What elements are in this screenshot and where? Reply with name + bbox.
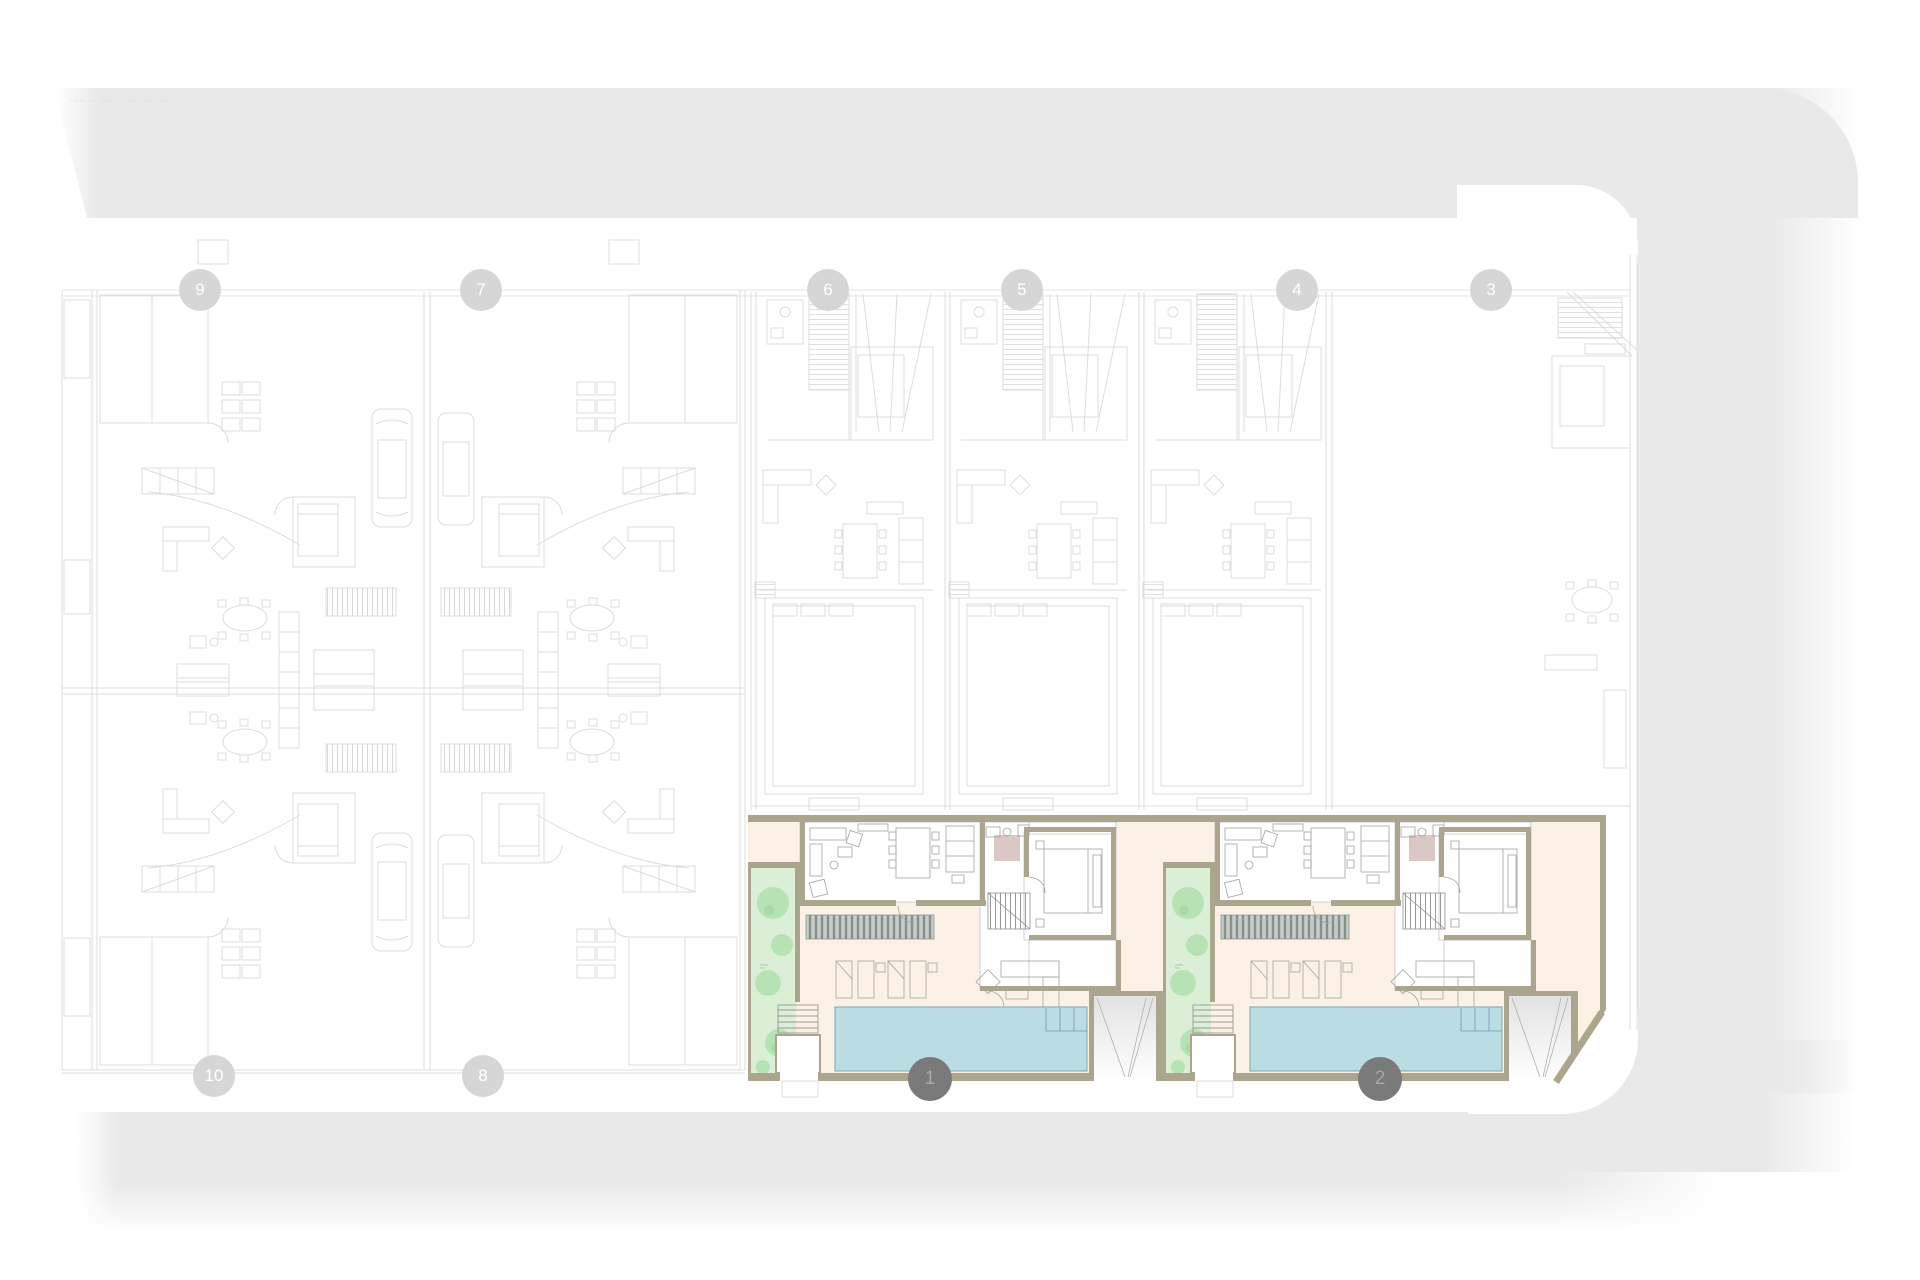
grid-bubble-label: 6	[823, 280, 832, 300]
grid-bubble-label: 7	[476, 280, 485, 300]
unit-badge-1: 1	[908, 1057, 952, 1101]
grid-bubble-5: 5	[1001, 269, 1043, 311]
grid-bubble-7: 7	[460, 269, 502, 311]
party-wall	[1156, 991, 1163, 1076]
grid-bubble-label: 8	[478, 1066, 487, 1086]
site-plan-drawing	[0, 0, 1920, 1280]
villa-unit-2	[1163, 815, 1578, 1097]
villa-unit-1	[748, 815, 1163, 1097]
grid-bubble-label: 10	[205, 1066, 224, 1086]
grid-bubble-label: 4	[1292, 280, 1301, 300]
unit-badge-2: 2	[1358, 1057, 1402, 1101]
grid-bubble-label: 3	[1486, 280, 1495, 300]
grid-bubble-8: 8	[462, 1055, 504, 1097]
grid-bubble-4: 4	[1276, 269, 1318, 311]
grid-bubble-label: 5	[1017, 280, 1026, 300]
unit-badge-label: 1	[925, 1068, 936, 1090]
grid-bubble-label: 9	[195, 280, 204, 300]
grid-bubble-9: 9	[179, 269, 221, 311]
grid-bubble-3: 3	[1470, 269, 1512, 311]
plan-caption: ∙∙∙∙∙ ∙∙∙ ∙∙∙∙ ∙ ∙ ∙∙∙ ∙∙∙∙∙ ∙∙∙	[70, 96, 270, 105]
grid-bubble-6: 6	[807, 269, 849, 311]
grid-bubble-10: 10	[193, 1055, 235, 1097]
unit-badge-label: 2	[1375, 1068, 1386, 1090]
